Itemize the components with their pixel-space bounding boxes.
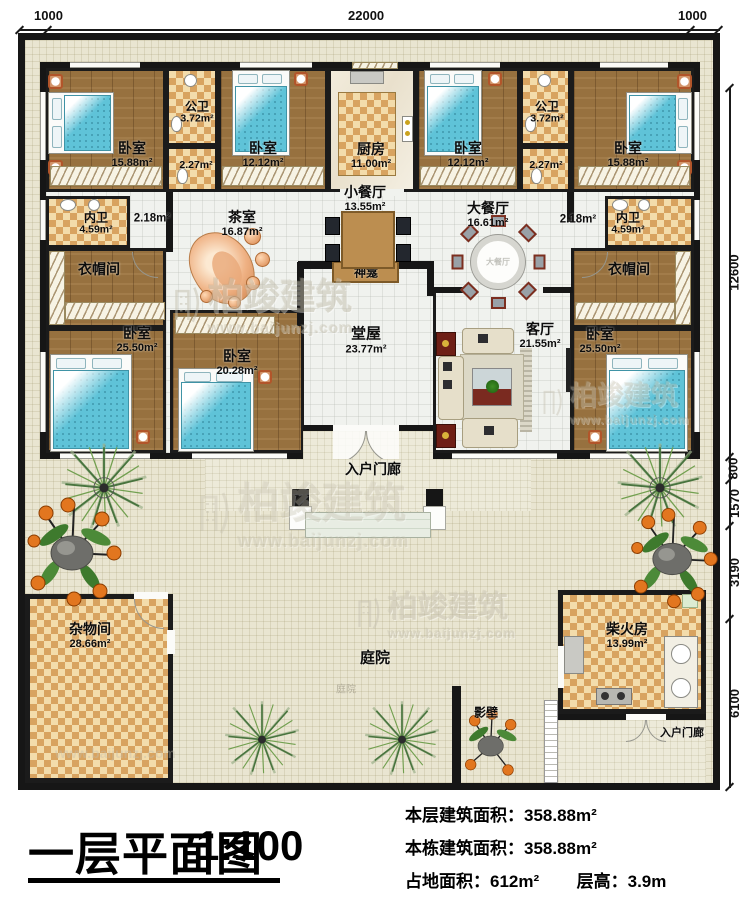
label-courtyard: 庭院 <box>360 651 390 668</box>
wardrobe <box>222 166 324 186</box>
label-bedroom-right: 卧室 25.50m² <box>580 327 621 355</box>
dim-line-right <box>729 88 731 788</box>
pillow <box>612 358 642 369</box>
label-bedroom-top-right: 卧室 15.88m² <box>608 141 649 169</box>
plan-scale: 1:100 <box>196 822 303 870</box>
plant-pot <box>486 380 499 393</box>
label-corridor-left: 2.18m² <box>134 213 170 226</box>
sofa-pillow <box>443 380 452 389</box>
pillow <box>52 126 62 148</box>
label-tea-room: 茶室 16.87m² <box>222 210 263 238</box>
closet-rack <box>575 302 675 320</box>
sink <box>612 199 628 211</box>
tea-dot <box>255 252 270 267</box>
chair <box>534 255 546 270</box>
burner <box>617 692 625 700</box>
sink <box>60 199 76 211</box>
dining-table-small <box>341 211 395 269</box>
pillow <box>648 358 678 369</box>
dim-right-3190: 3190 <box>727 558 742 587</box>
window <box>40 200 46 240</box>
nightstand <box>258 370 272 384</box>
label-cloakroom-left: 衣帽间 <box>78 262 120 278</box>
chair <box>396 217 411 235</box>
porch-column <box>426 489 443 506</box>
stat-land-area-and-height: 占地面积：612m² 层高：3.9m <box>405 867 666 892</box>
label-public-bath-left: 公卫 3.72m² <box>180 100 213 125</box>
wardrobe <box>420 166 516 186</box>
label-bedroom-center: 卧室 20.28m² <box>217 349 258 377</box>
window <box>600 62 668 68</box>
sofa-pillow <box>443 362 452 371</box>
label-front-porch: 入户门廊 <box>345 462 401 478</box>
dim-right-6100: 6100 <box>727 689 742 718</box>
wall-living-stub-left <box>433 287 463 293</box>
window <box>240 62 312 68</box>
label-small-dining: 小餐厅 13.55m² <box>344 185 386 213</box>
label-firewood: 柴火房 13.99m² <box>606 622 648 650</box>
window <box>430 62 500 68</box>
basin <box>671 678 691 698</box>
chair <box>325 244 340 262</box>
label-living-room: 客厅 21.55m² <box>520 322 561 350</box>
chair <box>396 244 411 262</box>
sofa <box>462 328 514 354</box>
label-side-porch: 入户门廊 <box>660 727 704 739</box>
nightstand <box>488 72 502 86</box>
sofa-pillow <box>484 426 494 435</box>
dining-table-round: 大餐厅 <box>471 235 525 289</box>
tea-dot <box>228 296 241 309</box>
flower-cluster <box>628 492 720 626</box>
pillow <box>92 358 122 369</box>
nightstand <box>588 430 602 444</box>
label-kitchen: 厨房 11.00m² <box>351 142 391 170</box>
title-underline <box>28 878 280 883</box>
dim-tick <box>725 782 734 791</box>
kitchen-sink <box>350 71 384 84</box>
porch-column <box>292 489 309 506</box>
basin <box>638 199 650 211</box>
label-bedroom-left: 卧室 25.50m² <box>117 326 158 354</box>
sofa-pillow <box>478 334 488 343</box>
closet-rack <box>65 302 165 320</box>
bed-mattress <box>609 370 685 449</box>
pillow <box>52 98 62 120</box>
pillow <box>678 126 688 148</box>
window <box>694 352 700 432</box>
nightstand <box>677 74 692 89</box>
entry-steps <box>305 512 431 538</box>
label-bedroom-top-3: 卧室 12.12m² <box>448 141 489 169</box>
pillow <box>454 74 474 84</box>
pillow <box>262 74 282 84</box>
label-public-bath-right-lobby: 2.27m² <box>529 160 562 172</box>
cabinet-knob <box>442 340 449 347</box>
tea-dot <box>246 276 260 290</box>
label-bedroom-top-2: 卧室 12.12m² <box>243 141 284 169</box>
wall-altar-right-stub <box>399 261 434 269</box>
dim-top-right: 1000 <box>678 8 707 23</box>
wardrobe <box>578 166 690 186</box>
stat-building-area: 本栋建筑面积：358.88m² <box>405 834 597 859</box>
dim-right-800: 800 <box>725 458 740 480</box>
burner <box>601 692 609 700</box>
window <box>694 200 700 240</box>
dim-top-center: 22000 <box>348 8 384 23</box>
window <box>40 92 46 160</box>
basin <box>671 644 691 664</box>
basin <box>88 199 100 211</box>
pillow <box>678 98 688 120</box>
label-cloakroom-right: 衣帽间 <box>608 262 650 278</box>
window <box>40 352 46 432</box>
table-faint-text: 大餐厅 <box>486 257 510 268</box>
nightstand <box>294 72 308 86</box>
bed-mattress <box>64 95 111 151</box>
chair <box>452 255 464 270</box>
storage-side-opening <box>167 630 175 654</box>
label-bedroom-top-left: 卧室 15.88m² <box>112 141 153 169</box>
pillow <box>238 74 258 84</box>
chair <box>491 297 506 309</box>
burner <box>405 120 410 125</box>
wall-living-stub-right <box>543 287 573 293</box>
dim-right-1570: 1570 <box>727 489 742 518</box>
pillow <box>56 358 86 369</box>
pillow <box>184 372 211 382</box>
bed-mattress <box>181 382 251 449</box>
burner <box>405 131 410 136</box>
closet-rack <box>49 251 65 325</box>
kitchen-top-door <box>352 62 398 69</box>
dim-top-left: 1000 <box>34 8 63 23</box>
label-public-bath-left-lobby: 2.27m² <box>179 160 212 172</box>
pillow <box>430 74 450 84</box>
wardrobe <box>50 166 162 186</box>
label-main-hall: 堂屋 23.77m² <box>346 326 387 355</box>
wardrobe <box>175 316 275 334</box>
dim-line-top <box>20 29 720 31</box>
window <box>70 62 140 68</box>
label-courtyard-faint: 庭院 <box>336 684 356 695</box>
label-corridor-right: 2.18m² <box>560 214 596 227</box>
stat-floor-area: 本层建筑面积：358.88m² <box>405 801 597 826</box>
label-storage: 杂物间 28.66m² <box>69 622 111 650</box>
palm-plant <box>362 696 442 780</box>
tea-dot <box>200 290 213 303</box>
nightstand <box>48 74 63 89</box>
basin <box>184 74 197 87</box>
basin <box>538 74 551 87</box>
label-public-bath-right: 公卫 3.72m² <box>530 100 563 125</box>
palm-plant <box>222 696 302 780</box>
label-ensuite-left: 内卫 4.59m² <box>79 211 112 236</box>
chair <box>325 217 340 235</box>
wall-hall-left <box>297 262 304 326</box>
window <box>694 92 700 160</box>
closet-rack <box>675 251 691 325</box>
dim-right-12600: 12600 <box>727 254 742 290</box>
storage-door-opening <box>134 592 168 599</box>
wall-altar-left-stub <box>298 261 332 269</box>
bed-mattress <box>53 370 129 449</box>
label-ensuite-right: 内卫 4.59m² <box>611 211 644 236</box>
label-large-dining: 大餐厅 16.61m² <box>467 201 509 229</box>
flower-cluster <box>24 492 124 614</box>
tv-screen <box>566 348 571 392</box>
label-screen-wall: 影壁 <box>474 706 498 719</box>
firewood-sink <box>564 636 584 674</box>
floor-plan-canvas: 1000 22000 1000 12600 800 1570 3190 6100 <box>0 0 750 900</box>
cabinet-knob <box>442 432 449 439</box>
side-steps <box>544 700 558 783</box>
